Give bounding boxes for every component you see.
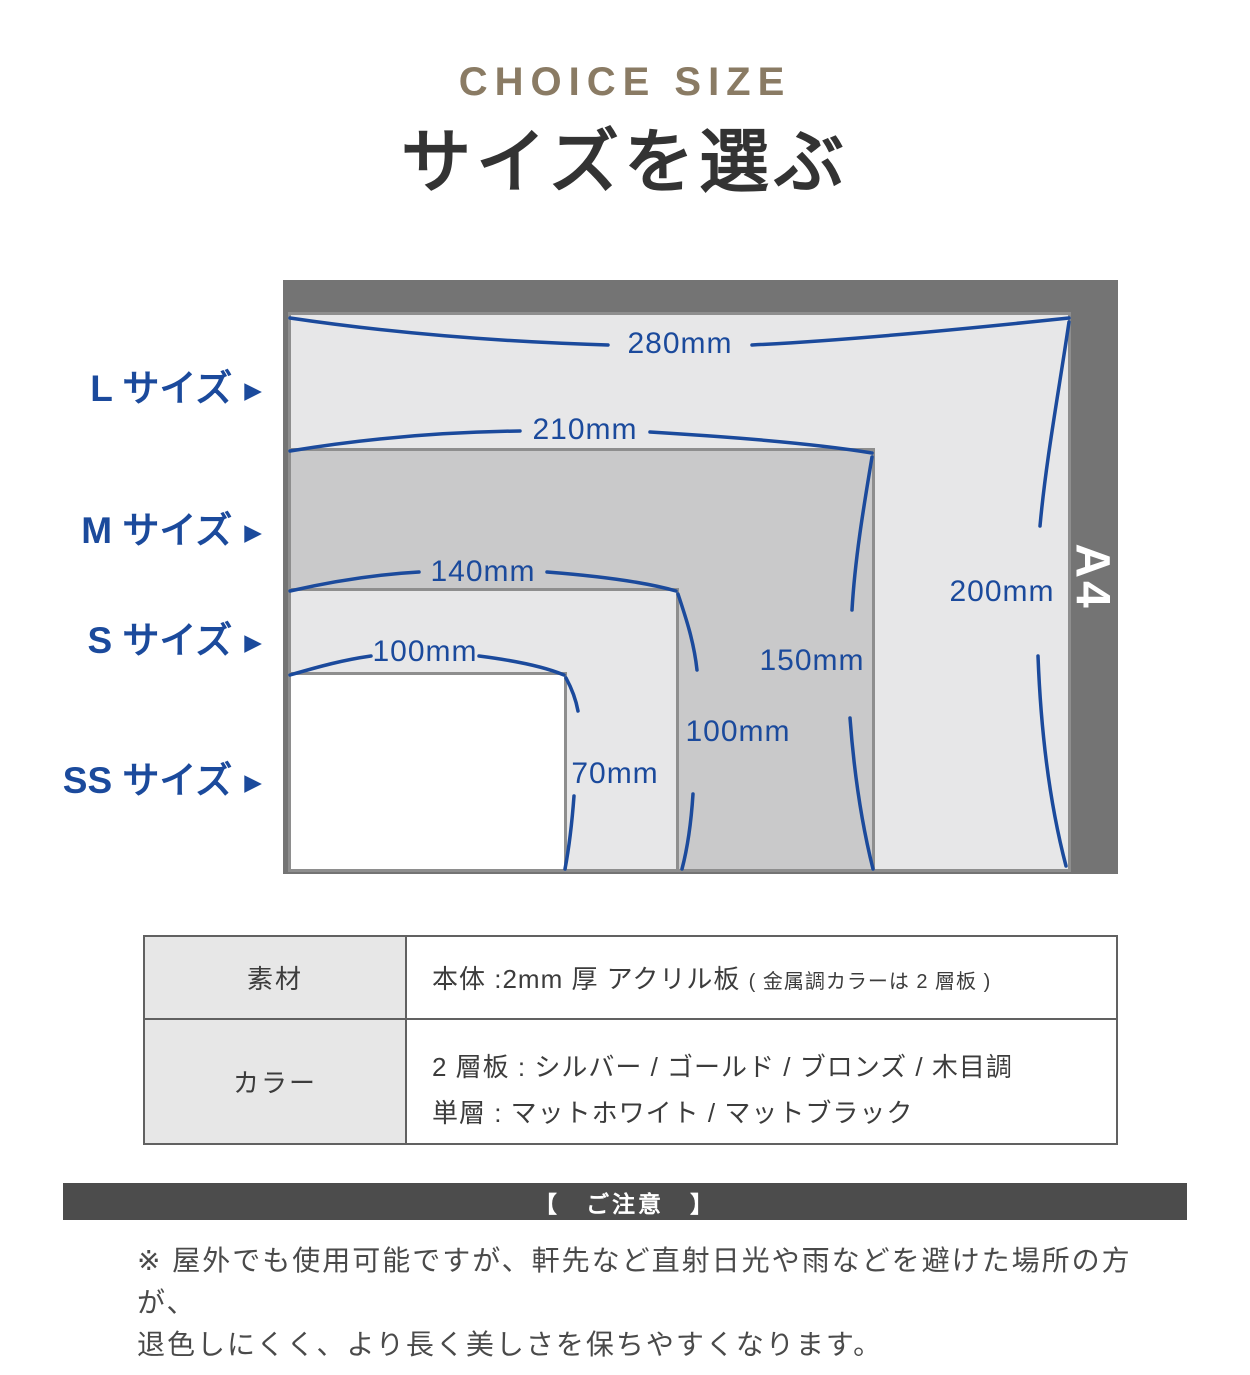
size-label-s-text: S サイズ xyxy=(87,620,232,661)
size-label-l-text: L サイズ xyxy=(90,368,232,409)
size-label-s: S サイズ▶ xyxy=(28,610,262,664)
arrow-right-icon: ▶ xyxy=(244,769,262,795)
spec-row-material-value: 本体 :2mm 厚 アクリル板 ( 金属調カラーは 2 層板 ) xyxy=(407,937,1116,1020)
arrow-right-icon: ▶ xyxy=(244,377,262,403)
size-label-l: L サイズ▶ xyxy=(28,358,262,412)
size-label-ss-text: SS サイズ xyxy=(63,760,233,801)
dim-label-l-height: 200mm xyxy=(949,575,1054,609)
size-label-ss: SS サイズ▶ xyxy=(28,750,262,804)
caution-note-line-1: ※ 屋外でも使用可能ですが、軒先など直射日光や雨などを避けた場所の方が、 xyxy=(137,1240,1187,1324)
size-rect-ss xyxy=(288,672,567,872)
arrow-right-icon: ▶ xyxy=(244,519,262,545)
material-value-text: 本体 :2mm 厚 アクリル板 ( 金属調カラーは 2 層板 ) xyxy=(432,959,1116,996)
color-line-2: 単層 : マットホワイト / マットブラック xyxy=(432,1090,1116,1136)
size-label-m-text: M サイズ xyxy=(81,510,232,551)
dim-label-ss-width: 100mm xyxy=(372,635,477,669)
spec-table: 素材 本体 :2mm 厚 アクリル板 ( 金属調カラーは 2 層板 ) カラー … xyxy=(143,935,1118,1145)
caution-banner: 【 ご注意 】 xyxy=(63,1183,1187,1220)
color-line-1: 2 層板 : シルバー / ゴールド / ブロンズ / 木目調 xyxy=(432,1044,1116,1090)
spec-row-color-header: カラー xyxy=(145,1020,407,1143)
dim-label-l-width: 280mm xyxy=(627,327,732,361)
dim-label-m-height: 150mm xyxy=(759,644,864,678)
a4-frame-label: A4 xyxy=(1065,543,1120,610)
dim-label-s-width: 140mm xyxy=(430,555,535,589)
spec-row-material-header: 素材 xyxy=(145,937,407,1020)
dim-label-m-width: 210mm xyxy=(532,413,637,447)
dim-label-s-height: 100mm xyxy=(685,715,790,749)
page-title-ja: サイズを選ぶ xyxy=(0,106,1250,207)
caution-note-line-2: 退色しにくく、より長く美しさを保ちやすくなります。 xyxy=(137,1324,1187,1366)
size-diagram: 280mm 200mm 210mm 150mm 140mm 100mm 100m… xyxy=(283,280,1118,874)
page-title-en: CHOICE SIZE xyxy=(0,60,1250,105)
caution-note: ※ 屋外でも使用可能ですが、軒先など直射日光や雨などを避けた場所の方が、 退色し… xyxy=(137,1240,1187,1366)
material-note: ( 金属調カラーは 2 層板 ) xyxy=(749,971,992,993)
spec-row-color-value: 2 層板 : シルバー / ゴールド / ブロンズ / 木目調 単層 : マット… xyxy=(407,1020,1116,1143)
size-label-m: M サイズ▶ xyxy=(28,500,262,554)
material-main: 本体 :2mm 厚 アクリル板 xyxy=(432,964,740,994)
dim-label-ss-height: 70mm xyxy=(571,757,658,791)
arrow-right-icon: ▶ xyxy=(244,629,262,655)
